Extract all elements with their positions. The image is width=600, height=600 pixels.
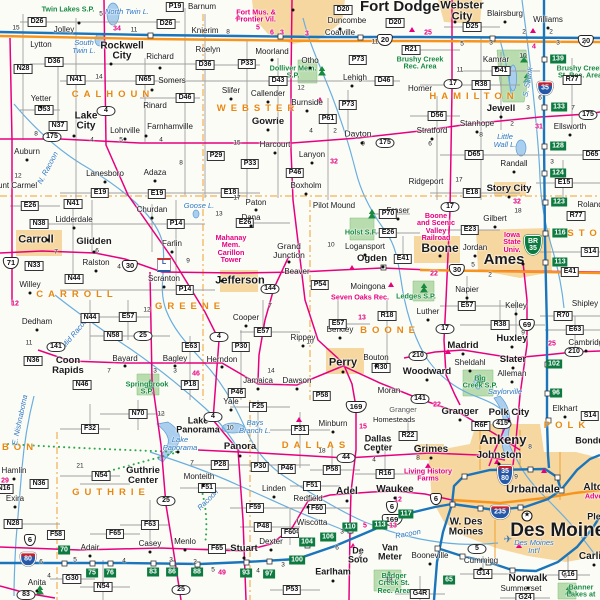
county-road-shield: D65 <box>583 150 600 160</box>
town-dot <box>255 209 258 212</box>
city-label: Alleman <box>498 370 527 378</box>
mileage-number: 3 <box>280 29 284 36</box>
city-label: Gowrie <box>252 117 284 127</box>
town-dot <box>351 85 354 88</box>
mileage-number: 2 <box>549 30 553 37</box>
town-dot <box>171 251 174 254</box>
town-dot <box>332 431 335 434</box>
city-label: Glidden <box>76 237 111 247</box>
state-route-shield: 44 <box>337 453 356 463</box>
city-label: Churdan <box>137 206 168 214</box>
city-label: Willey <box>19 281 40 289</box>
mileage-number: 15 <box>233 141 240 148</box>
city-label: Kamrar <box>483 56 509 64</box>
mileage-number: 3 <box>305 30 309 37</box>
mileage-number: 12 <box>143 308 150 315</box>
town-dot <box>221 366 224 369</box>
city-label: Jewell <box>487 104 516 114</box>
town-dot <box>382 266 385 269</box>
county-road-shield: E57 <box>119 312 137 322</box>
county-road-shield: D25 <box>463 22 482 32</box>
town-dot <box>511 381 514 384</box>
mileage-number: 6 <box>428 142 432 149</box>
exit-number: 104 <box>299 538 315 547</box>
town-dot <box>498 463 501 466</box>
city-label: Rinard <box>143 102 167 110</box>
mileage-number: 13 <box>385 578 392 585</box>
mileage-number: 2 <box>193 560 197 567</box>
county-road-shield: D53 <box>35 105 54 115</box>
county-road-shield: P33 <box>241 159 259 169</box>
city-label: Lehigh <box>343 74 367 82</box>
water-label: Goose L. <box>184 202 214 210</box>
town-dot <box>569 134 572 137</box>
county-road-shield: P33 <box>238 59 256 69</box>
mileage-number: 6 <box>95 249 99 256</box>
town-dot <box>124 365 127 368</box>
town-dot <box>245 325 248 328</box>
county-road-shield: E41 <box>394 254 412 264</box>
us-route-shield: 71 <box>3 257 19 269</box>
city-label: Lidderdale <box>55 216 92 224</box>
mileage-number: 25 <box>548 340 556 347</box>
town-dot <box>292 9 295 12</box>
county-road-shield: N38 <box>30 219 49 229</box>
county-road-shield: F65 <box>106 529 124 539</box>
town-dot <box>342 371 345 374</box>
exit-number: 96 <box>550 389 562 398</box>
city-label: Rockwell City <box>100 42 143 63</box>
exit-number: 110 <box>342 523 357 532</box>
city-label: Shipley <box>572 300 598 308</box>
town-dot <box>151 89 154 92</box>
city-label: Fort Dodge <box>360 0 440 15</box>
park-label: Brushy Creek Rec. Area <box>397 56 444 71</box>
city-label: Dayton <box>345 130 372 139</box>
interstate-shield: 235 <box>490 505 510 519</box>
mileage-number: 5 <box>73 558 77 565</box>
city-label: Rippey <box>291 334 316 342</box>
city-label: Story City <box>487 184 532 194</box>
city-label: Ellsworth <box>554 123 586 131</box>
mileage-number: 4 <box>122 559 126 566</box>
mileage-number: 14 <box>95 75 102 82</box>
city-label: Adaza <box>144 169 167 177</box>
poi-label: Iowa State Univ. <box>503 231 521 253</box>
exit-number: 86 <box>166 568 178 577</box>
mileage-number: 25 <box>424 29 432 36</box>
city-label: Moingona <box>350 283 385 291</box>
state-route-shield: 175 <box>579 110 598 120</box>
county-road-shield: N46 <box>73 380 92 390</box>
city-label: Madrid <box>447 341 478 351</box>
mileage-number: 7 <box>571 106 575 113</box>
mileage-number: 3 <box>281 563 285 570</box>
town-dot <box>270 549 273 552</box>
state-route-shield: 4 <box>210 332 229 342</box>
town-dot <box>274 152 277 155</box>
county-road-shield: N36 <box>24 356 43 366</box>
mileage-number: 6 <box>538 96 542 103</box>
city-label: Johnston <box>477 451 522 461</box>
town-dot <box>230 409 233 412</box>
county-road-shield: N28 <box>4 519 23 529</box>
city-label: Knierim <box>191 27 218 35</box>
exit-number: 116 <box>552 229 567 238</box>
town-dot <box>26 159 29 162</box>
county-road-shield: N54 <box>92 471 111 481</box>
mileage-number: 3 <box>526 106 530 113</box>
county-road-shield: F63 <box>141 520 159 530</box>
town-dot <box>40 106 43 109</box>
park-label: Twin Lakes S.P. <box>42 5 95 12</box>
city-label: Bondurant <box>575 436 600 445</box>
city-label: Beaver <box>284 268 309 276</box>
county-road-shield: P46 <box>286 168 304 178</box>
town-dot <box>397 218 400 221</box>
mileage-number: 11 <box>26 341 33 348</box>
city-label: Luther <box>417 308 440 316</box>
town-dot <box>469 370 472 373</box>
town-dot <box>163 286 166 289</box>
city-label: Coon Rapids <box>52 356 84 376</box>
town-dot <box>154 180 157 183</box>
city-label: Jamaica <box>243 377 273 385</box>
road-atlas-map: CALHOUNWEBSTERHAMILTONCARROLLGREENEBOONE… <box>0 0 600 600</box>
mileage-number: 4 <box>372 458 376 465</box>
county-road-shield: R21 <box>402 45 421 55</box>
county-road-shield: F31 <box>291 425 309 435</box>
poi-label: Mahanay Mem. Carillon Tower <box>216 234 247 264</box>
park-label: Big Creek S.P. <box>463 375 498 390</box>
mileage-number: 3 <box>169 558 173 565</box>
county-road-shield: G16 <box>558 570 577 580</box>
town-dot <box>73 227 76 230</box>
county-road-shield: D20 <box>386 18 405 28</box>
town-dot <box>454 21 457 24</box>
water-label: N. Racoon <box>36 151 60 186</box>
county-road-shield: E57 <box>329 319 347 329</box>
city-label: Van Meter <box>378 544 402 563</box>
mileage-number: 3 <box>550 160 554 167</box>
exit-number: 65 <box>443 576 455 585</box>
town-dot <box>273 496 276 499</box>
city-label: Redfield <box>293 495 322 503</box>
mileage-number: 2 <box>510 122 514 129</box>
state-route-shield: 17 <box>436 324 455 334</box>
city-label: Mount Carmel <box>0 182 37 190</box>
mileage-number: 4 <box>159 138 163 145</box>
county-road-shield: E63 <box>182 342 200 352</box>
county-road-shield: F32 <box>81 424 99 434</box>
water-label: Racoon <box>395 528 422 540</box>
town-dot <box>307 506 310 509</box>
town-dot <box>394 497 397 500</box>
state-route-shield: 5 <box>468 544 487 554</box>
mileage-number: 2 <box>522 30 526 37</box>
mileage-number: 22 <box>433 401 441 408</box>
city-label: Ogden <box>357 254 387 264</box>
water-label: E. Nishnabotna <box>11 394 29 446</box>
county-road-shield: P53 <box>283 585 301 595</box>
water-label: Little Wall L. <box>494 133 517 149</box>
mileage-number: 8 <box>179 161 183 168</box>
mileage-number: 7 <box>54 250 58 257</box>
city-label: Panora <box>224 442 256 452</box>
exit-number: 70 <box>58 546 70 555</box>
city-label: Otho <box>301 57 318 65</box>
water-label: Bays Branch L. <box>239 419 271 435</box>
mileage-number: 8 <box>479 133 483 140</box>
mileage-number: 12 <box>11 300 19 307</box>
town-dot <box>332 580 335 583</box>
mileage-number: 4 <box>117 265 121 272</box>
exit-number: 133 <box>551 103 567 112</box>
city-label: Dawson <box>283 377 312 385</box>
county-label: BOONE <box>360 326 420 336</box>
county-road-shield: N65 <box>136 75 155 85</box>
city-label: Lake City <box>75 112 98 133</box>
exit-number: 117 <box>398 510 413 519</box>
county-road-shield: N37 <box>49 121 68 131</box>
mileage-number: 18 <box>514 209 521 216</box>
city-label: Guthrie Center <box>126 466 160 486</box>
mileage-number: 8 <box>528 445 532 452</box>
county-road-shield: N58 <box>104 331 123 341</box>
county-road-shield: F60 <box>308 504 326 514</box>
city-label: Pleasant Hill <box>587 512 600 521</box>
mileage-number: 3 <box>489 41 493 48</box>
county-road-shield: E19 <box>91 188 109 198</box>
county-road-shield: G30 <box>62 574 81 584</box>
town-dot <box>515 313 518 316</box>
county-label: HAMILTON <box>429 92 518 102</box>
county-label: WEBSTER <box>217 104 300 114</box>
county-road-shield: R38 <box>472 80 491 90</box>
town-dot <box>431 138 434 141</box>
exit-number: 75 <box>86 569 98 578</box>
state-route-shield: 141 <box>47 342 66 352</box>
us-route-shield: 6 <box>386 501 398 513</box>
us-route-shield: 30 <box>449 264 465 276</box>
town-dot <box>243 557 246 560</box>
city-label: Gilbert <box>483 215 507 223</box>
state-route-shield: 175 <box>376 138 395 148</box>
county-road-shield: E15 <box>555 178 573 188</box>
city-label: Auburn <box>14 148 40 156</box>
town-dot <box>288 261 291 264</box>
mileage-number: 5 <box>256 24 260 31</box>
us-route-shield: 20 <box>578 35 594 47</box>
city-label: Jolley <box>54 26 74 34</box>
mileage-number: 11 <box>131 28 138 35</box>
us-route-shield: 169 <box>346 401 367 413</box>
city-label: Moran <box>378 387 401 395</box>
mileage-number: 49 <box>218 569 226 576</box>
town-dot <box>375 365 378 368</box>
exit-number: 113 <box>372 521 387 530</box>
town-dot <box>593 564 596 567</box>
city-label: Monteith <box>184 473 215 481</box>
city-label: Barnum <box>188 3 216 11</box>
county-road-shield: P46 <box>278 464 296 474</box>
lincoln-highway-icon: L <box>157 258 171 272</box>
state-route-shield: 210 <box>565 347 584 357</box>
city-label: Granger <box>442 407 479 417</box>
exit-number: 106 <box>320 533 336 542</box>
us-route-shield: 30 <box>122 260 138 272</box>
exit-number: 102 <box>546 360 562 369</box>
town-dot <box>93 251 96 254</box>
town-dot <box>377 451 380 454</box>
county-road-shield: R77 <box>567 211 586 221</box>
us-route-shield: 20 <box>377 34 393 46</box>
mileage-number: 12 <box>157 412 164 419</box>
town-dot <box>462 353 465 356</box>
city-label: Sheldahl <box>454 359 485 367</box>
town-dot <box>430 457 433 460</box>
mileage-number: 13 <box>358 314 366 321</box>
city-label: Paton <box>246 199 267 207</box>
county-road-shield: N54 <box>94 582 113 592</box>
county-road-shield: N70 <box>129 409 148 419</box>
county-road-shield: E41 <box>561 267 579 277</box>
town-dot <box>29 292 32 295</box>
town-dot <box>564 416 567 419</box>
town-dot <box>427 319 430 322</box>
state-capital-icon: ★ <box>522 511 533 522</box>
poi-label: Seven Oaks Rec. <box>331 293 389 300</box>
mileage-number: 5 <box>211 568 215 575</box>
town-dot <box>47 239 50 242</box>
county-road-shield: P46 <box>228 388 246 398</box>
city-label: Dexter <box>259 538 283 546</box>
county-road-shield: D43 <box>269 76 288 86</box>
county-road-shield: P73 <box>349 55 367 65</box>
county-road-shield: P54 <box>311 280 329 290</box>
town-dot <box>429 563 432 566</box>
city-label: Napier <box>455 286 479 294</box>
state-route-shield: 141 <box>411 394 430 404</box>
county-road-shield: P30 <box>232 342 250 352</box>
city-label: Randall <box>500 160 527 168</box>
county-road-shield: N44 <box>81 313 100 323</box>
city-label: Linden <box>262 485 286 493</box>
city-label: Williams <box>533 16 563 24</box>
mileage-number: 32 <box>513 198 521 205</box>
town-dot <box>339 337 342 340</box>
park-label: Springbrook S.P. <box>126 381 169 396</box>
city-label: Minburn <box>319 420 348 428</box>
town-dot <box>305 193 308 196</box>
county-label: CALHOUN <box>72 90 155 100</box>
park-label: Banner Lakes at <box>567 584 596 599</box>
town-dot <box>184 549 187 552</box>
city-label: Roelyn <box>196 46 221 54</box>
exit-number: 100 <box>289 556 305 565</box>
city-label: Boone <box>421 242 458 254</box>
county-road-shield: E26 <box>379 228 397 238</box>
county-road-shield: F65 <box>208 544 226 554</box>
county-road-shield: D65 <box>465 150 484 160</box>
mileage-number: 9 <box>521 331 525 338</box>
county-road-shield: F51 <box>303 481 321 491</box>
county-label: POLK <box>544 421 590 431</box>
city-label: Perry <box>329 357 357 368</box>
mileage-number: 10 <box>519 54 526 61</box>
town-dot <box>14 506 17 509</box>
interstate-shield: 35 80 <box>497 465 513 485</box>
business-route-shield: BR 35 <box>524 235 542 255</box>
city-label: Cambridge <box>568 339 600 347</box>
city-label: Pilot Mound <box>313 202 355 210</box>
city-label: Herndon <box>207 356 238 364</box>
town-dot <box>13 478 16 481</box>
city-label: Stuart <box>230 544 257 554</box>
county-road-shield: D26 <box>28 17 47 27</box>
town-dot <box>504 21 507 24</box>
mileage-number: 12 <box>14 174 21 181</box>
county-road-shield: P30 <box>251 462 269 472</box>
mileage-number: 14 <box>267 369 274 376</box>
city-label: Carlisle <box>579 552 600 562</box>
city-label: Des Moines <box>510 521 600 541</box>
mileage-number: 8 <box>226 30 230 37</box>
county-road-shield: F60 <box>281 528 299 538</box>
mileage-number: 5 <box>119 138 123 145</box>
county-road-shield: D20 <box>334 5 353 15</box>
county-road-shield: R18 <box>378 311 397 321</box>
city-label: Ralston <box>82 259 109 267</box>
town-dot <box>459 419 462 422</box>
county-label: STORY <box>567 229 600 239</box>
city-label: Bagley <box>163 355 187 363</box>
town-dot <box>466 297 469 300</box>
town-dot <box>494 226 497 229</box>
city-label: Lohrville <box>110 127 140 135</box>
mileage-number: 4 <box>47 574 51 581</box>
town-dot <box>511 346 514 349</box>
mileage-number: 4 <box>309 129 313 136</box>
mileage-number: 3 <box>556 41 560 48</box>
city-label: Jordan <box>463 244 487 252</box>
mileage-number: 22 <box>430 270 438 277</box>
city-label: Bayard <box>112 355 137 363</box>
city-label: Ankeny <box>480 433 527 447</box>
county-road-shield: P18 <box>181 380 199 390</box>
city-label: Anita <box>28 579 46 587</box>
city-label: Richard <box>146 53 174 61</box>
county-road-shield: P14 <box>167 219 185 229</box>
city-label: Slifer <box>222 87 240 95</box>
county-road-shield: R38 <box>491 320 510 330</box>
city-label: Urbandale <box>506 484 560 495</box>
town-dot <box>151 217 154 220</box>
mileage-number: 34 <box>113 25 121 32</box>
us-route-shield: 6 <box>430 493 442 505</box>
state-route-shield: 175 <box>43 132 62 142</box>
mileage-number: 17 <box>455 178 462 185</box>
exit-number: 83 <box>147 568 159 577</box>
mileage-number: 9 <box>186 259 190 266</box>
town-dot <box>311 162 314 165</box>
town-dot <box>149 551 152 554</box>
county-road-shield: D26 <box>157 19 176 29</box>
town-dot <box>339 28 342 31</box>
town-dot <box>89 555 92 558</box>
airport-icon: ✈ <box>504 535 512 546</box>
county-road-shield: R6F <box>471 421 490 431</box>
